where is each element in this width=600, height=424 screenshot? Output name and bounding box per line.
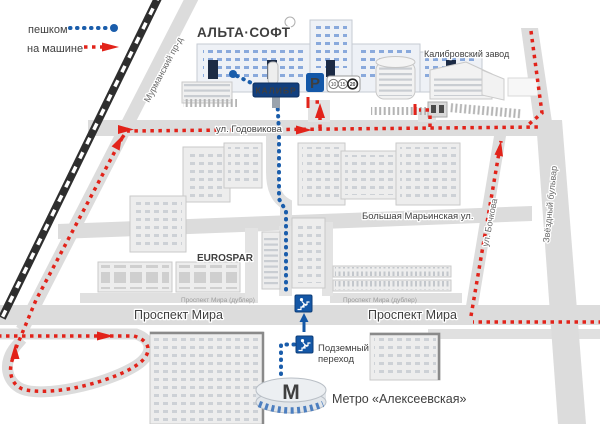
street-zvezdny-south — [536, 120, 586, 424]
dubler-left-label: Проспект Мира (дублер) — [181, 296, 255, 304]
fence — [183, 99, 522, 118]
underpass-label-line1: Подземный — [318, 343, 369, 354]
legend: пешком на машине — [27, 24, 119, 55]
underpass-sign-south — [296, 336, 313, 353]
dubler-right-label: Проспект Мира (дублер) — [343, 296, 417, 304]
gatehouse — [428, 102, 447, 117]
eurospar-label: EUROSPAR — [197, 253, 254, 264]
altasoft-logo: АЛЬТА·СОФТ — [197, 25, 291, 40]
kalibrovsky-zavod-label: Калибровский завод — [424, 49, 510, 59]
round-building — [376, 57, 415, 100]
street-loop — [0, 334, 149, 392]
legend-car-label: на машине — [27, 43, 83, 55]
kalibrovsky-zavod-building — [430, 62, 538, 100]
underpass-label-line2: переход — [318, 354, 355, 365]
monument — [268, 62, 278, 84]
lane-left — [245, 228, 258, 300]
walk-route-endpoint-dot — [229, 70, 237, 78]
route-map: КАЛИБР P 10 15 20 М АЛЬТА·СОФ — [0, 0, 600, 424]
walk-route-metro — [281, 345, 294, 378]
legend-car-arrow — [102, 43, 119, 52]
metro-building: М — [256, 378, 326, 413]
legend-walk-label: пешком — [28, 24, 68, 36]
parking-sign: P 10 15 20 — [306, 73, 360, 92]
zone-10: 10 — [331, 82, 337, 88]
metro-m-sign: М — [282, 381, 300, 404]
underpass-sign-north — [295, 295, 312, 312]
prospekt-mira-right-label: Проспект Мира — [368, 308, 457, 322]
godovikova-label: ул. Годовикова — [216, 124, 283, 135]
metro-word-label: Метро — [332, 392, 369, 406]
kalibr-sign-label: КАЛИБР — [255, 86, 296, 96]
zone-15: 15 — [340, 82, 346, 88]
metro-station-label: «Алексеевская» — [372, 392, 467, 406]
map-canvas: КАЛИБР P 10 15 20 М АЛЬТА·СОФ — [0, 0, 600, 424]
parking-sign-label: P — [310, 75, 320, 92]
kalibr-sign: КАЛИБР — [253, 83, 299, 108]
prospekt-mira-left-label: Проспект Мира — [134, 308, 223, 322]
zone-20: 20 — [350, 82, 356, 88]
street-zvezdny-north — [521, 28, 552, 122]
legend-walk-dot — [110, 24, 118, 32]
marinskaya-label: Большая Марьинская ул. — [362, 211, 474, 222]
